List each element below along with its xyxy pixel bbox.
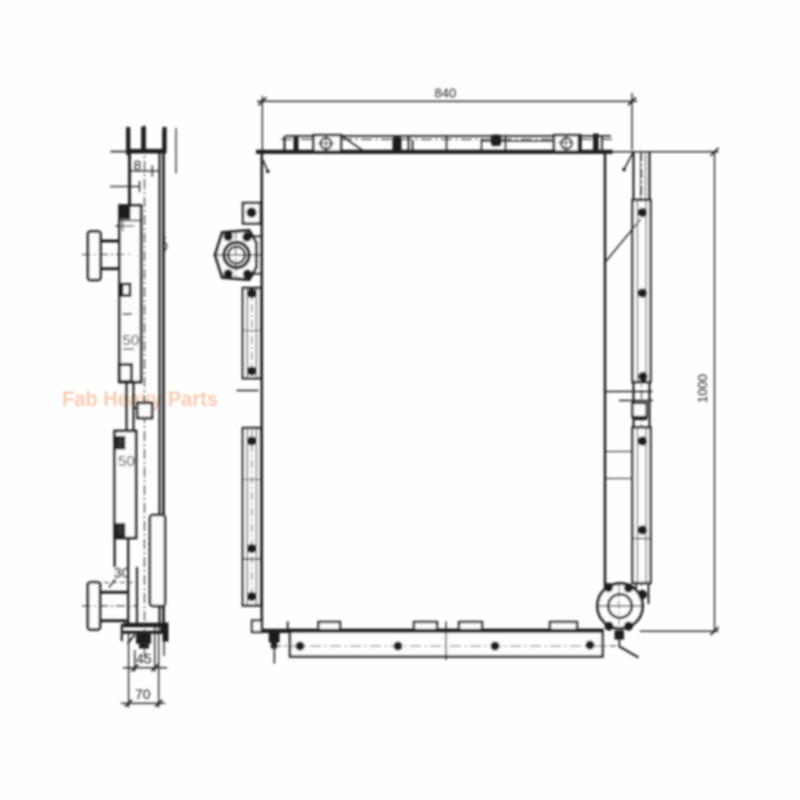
svg-text:50: 50	[123, 332, 140, 349]
svg-text:1000: 1000	[695, 374, 710, 403]
svg-text:30: 30	[114, 565, 130, 581]
svg-text:840: 840	[435, 86, 457, 101]
svg-text:70: 70	[135, 686, 151, 702]
svg-text:45: 45	[136, 651, 152, 667]
svg-text:50: 50	[118, 453, 135, 470]
